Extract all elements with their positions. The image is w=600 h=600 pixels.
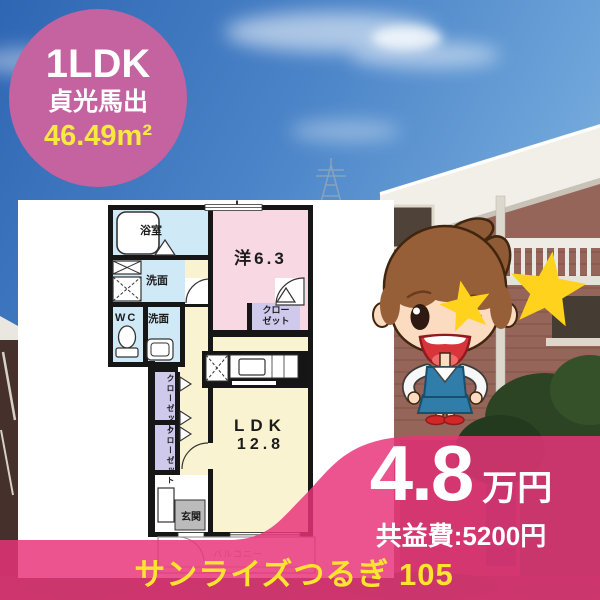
rent-value: 4.8 [370, 434, 472, 512]
area-label: 46.49m² [44, 119, 152, 154]
listing-flyer: 浴室 洗面 WC 洗面 洋6.3 クロー ゼット クローゼット クローゼット L… [0, 0, 600, 600]
rent-row: 4.8 万円 [336, 434, 586, 512]
property-name: サンライズつるぎ 105 [0, 549, 588, 594]
location-label: 貞光馬出 [48, 86, 148, 119]
layout-type-label: 1LDK [46, 42, 150, 86]
common-fee: 共益費:5200円 [336, 516, 586, 553]
property-badge: 1LDK 貞光馬出 46.49m² [9, 9, 187, 187]
rent-unit: 万円 [482, 460, 552, 511]
price-block: 4.8 万円 共益費:5200円 [336, 434, 586, 553]
